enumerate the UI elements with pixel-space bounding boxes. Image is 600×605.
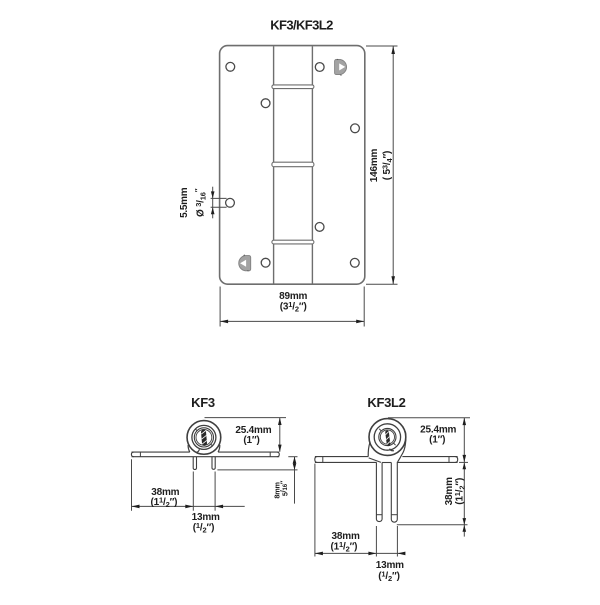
svg-text:KF3: KF3 bbox=[191, 395, 215, 410]
svg-text:Ø 3/16″: Ø 3/16″ bbox=[194, 188, 208, 217]
svg-text:38mm: 38mm bbox=[332, 531, 360, 542]
svg-text:(11/2″): (11/2″) bbox=[331, 540, 358, 554]
svg-text:( 53/4″): ( 53/4″) bbox=[380, 151, 394, 180]
svg-text:(1″): (1″) bbox=[429, 435, 445, 446]
svg-text:38mm: 38mm bbox=[444, 477, 455, 505]
svg-text:(1″): (1″) bbox=[243, 435, 259, 446]
svg-text:13mm: 13mm bbox=[376, 560, 404, 571]
svg-text:KF3L2: KF3L2 bbox=[367, 395, 405, 410]
svg-text:89mm: 89mm bbox=[279, 291, 307, 302]
svg-text:(31/2″): (31/2″) bbox=[280, 300, 307, 314]
svg-text:(11/2″): (11/2″) bbox=[151, 495, 178, 509]
svg-text:KF3/KF3L2: KF3/KF3L2 bbox=[270, 17, 333, 32]
svg-text:146mm: 146mm bbox=[369, 148, 380, 182]
svg-text:(11/2″): (11/2″) bbox=[453, 478, 467, 505]
svg-text:5.5mm: 5.5mm bbox=[179, 187, 190, 218]
